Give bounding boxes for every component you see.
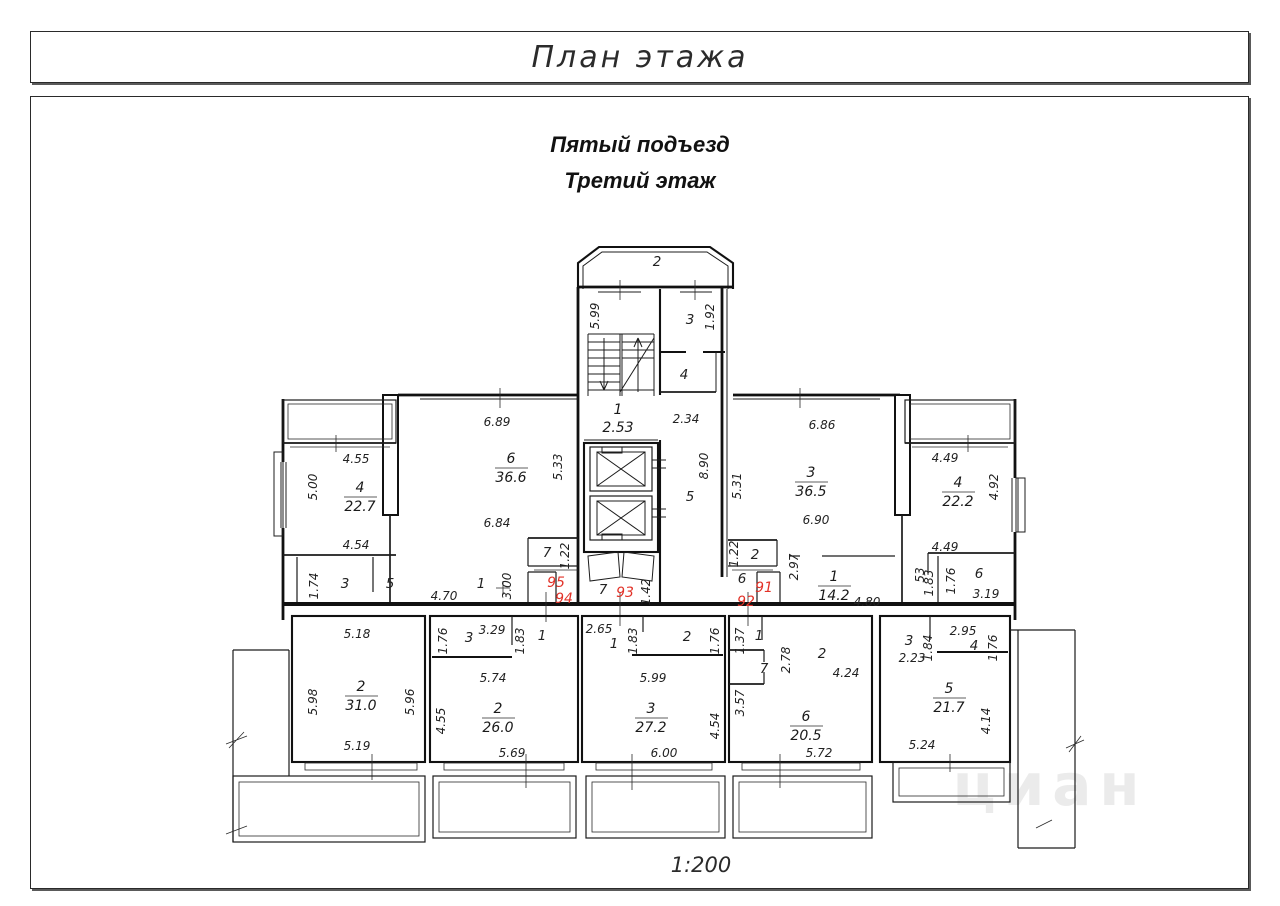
- dim: 4.14: [979, 708, 993, 735]
- dim: 1.83: [922, 570, 936, 597]
- dim: 6.89: [484, 415, 511, 429]
- floor-plan-drawing: циан: [0, 0, 1280, 906]
- dim: 4.92: [987, 474, 1001, 501]
- dim: 4.55: [343, 452, 370, 466]
- zone-num: 2: [818, 646, 827, 662]
- room-num: 4: [954, 475, 963, 491]
- dim: 5.99: [640, 671, 667, 685]
- dim: 1.76: [708, 627, 722, 654]
- dim: 5.69: [499, 746, 526, 760]
- dim: 5.24: [909, 738, 936, 752]
- scale-label: 1:200: [671, 853, 732, 877]
- dim: 1.22: [558, 543, 572, 570]
- zone-num: 4: [680, 367, 689, 383]
- dim: 5.72: [806, 746, 833, 760]
- dim: 4.54: [343, 538, 370, 552]
- dim: 1.76: [986, 634, 1000, 661]
- dim: 4.49: [932, 540, 959, 554]
- room-area: 21.7: [933, 700, 964, 716]
- room-area: 36.6: [495, 470, 526, 486]
- zone-num: 3: [341, 576, 350, 592]
- dim: 3.57: [733, 689, 747, 716]
- dim: 4.55: [434, 708, 448, 735]
- dim: 5.74: [480, 671, 507, 685]
- dim: 5.33: [551, 454, 565, 481]
- zone-num: 6: [738, 571, 747, 587]
- dim: 1.83: [513, 628, 527, 655]
- dim: 8.90: [697, 452, 711, 479]
- zone-num: 5: [386, 576, 395, 592]
- room-area: 26.0: [482, 720, 513, 736]
- room-num: 6: [507, 451, 516, 467]
- zone-number-labels: 2 3 4 5 7 1 5 3 7 2 6 6 3 1 1 2 1 7 2 3 …: [341, 254, 984, 677]
- room-num: 2: [357, 679, 366, 695]
- dim: 1.42: [639, 579, 653, 606]
- zone-num: 2: [751, 547, 760, 563]
- room-area: 36.5: [795, 484, 826, 500]
- dim: 5.18: [344, 627, 371, 641]
- apartment-number-94: 94: [555, 591, 573, 607]
- room-num: 6: [802, 709, 811, 725]
- dim: 4.70: [431, 589, 458, 603]
- dim: 5.96: [403, 688, 417, 715]
- dim: 3.29: [479, 623, 506, 637]
- dim: 6.00: [651, 746, 678, 760]
- dim: 2.95: [950, 624, 977, 638]
- zone-num: 3: [465, 630, 474, 646]
- dim: 1.37: [733, 627, 747, 654]
- dim: 5.31: [730, 473, 744, 500]
- room-num: 1: [830, 569, 839, 585]
- zone-num: 3: [905, 633, 914, 649]
- dim: 1.83: [626, 628, 640, 655]
- dim: 5.98: [306, 688, 320, 715]
- apartment-number-92: 92: [737, 594, 755, 610]
- dim: 6.90: [803, 513, 830, 527]
- dim: 2.78: [779, 646, 793, 673]
- dim: 3.00: [500, 572, 514, 599]
- dim: 4.80: [854, 595, 881, 609]
- dim: 1.92: [703, 304, 717, 331]
- dim: 1.74: [307, 573, 321, 600]
- apartment-number-91: 91: [755, 580, 773, 596]
- dim: 6.86: [809, 418, 836, 432]
- zone-num: 2: [653, 254, 662, 270]
- dim: 2.97: [787, 553, 801, 580]
- room-area: 22.2: [942, 494, 973, 510]
- dim: 6.84: [484, 516, 511, 530]
- room-num: 3: [807, 465, 816, 481]
- zone-num: 1: [755, 628, 764, 644]
- room-num: 5: [945, 681, 954, 697]
- room-area: 20.5: [790, 728, 821, 744]
- dim: 2.65: [586, 622, 613, 636]
- dim: 5.99: [588, 303, 602, 330]
- dim: 1.84: [921, 635, 935, 662]
- dim: 3.19: [973, 587, 1000, 601]
- zone-num: 5: [686, 489, 695, 505]
- zone-num: 1: [610, 636, 619, 652]
- dim: 4.54: [708, 713, 722, 740]
- zone-num: 4: [970, 638, 979, 654]
- zone-num: 3: [686, 312, 695, 328]
- zone-num: 7: [543, 545, 552, 561]
- zone-num: 1: [477, 576, 486, 592]
- dim: 1.76: [944, 567, 958, 594]
- room-area: 31.0: [345, 698, 376, 714]
- room-num: 2: [494, 701, 503, 717]
- dim: 5.00: [306, 473, 320, 500]
- zone-num: 2: [683, 629, 692, 645]
- room-area: 22.7: [344, 499, 375, 515]
- dim: 4.24: [833, 666, 860, 680]
- dim: 1.76: [436, 627, 450, 654]
- dim: 4.49: [932, 451, 959, 465]
- zone-num: 1: [538, 628, 547, 644]
- dim: 1.22: [727, 541, 741, 568]
- room-num: 3: [647, 701, 656, 717]
- dim: 2.34: [673, 412, 700, 426]
- room-num: 1: [614, 402, 623, 418]
- zone-num: 7: [760, 661, 769, 677]
- room-dim: 2.53: [602, 420, 633, 436]
- zone-num: 7: [599, 582, 608, 598]
- dim: 5.19: [344, 739, 371, 753]
- room-area: 27.2: [635, 720, 666, 736]
- room-num: 4: [356, 480, 365, 496]
- room-area: 14.2: [818, 588, 849, 604]
- apartment-number-93: 93: [616, 585, 634, 601]
- apartment-number-95: 95: [547, 575, 565, 591]
- zone-num: 6: [975, 566, 984, 582]
